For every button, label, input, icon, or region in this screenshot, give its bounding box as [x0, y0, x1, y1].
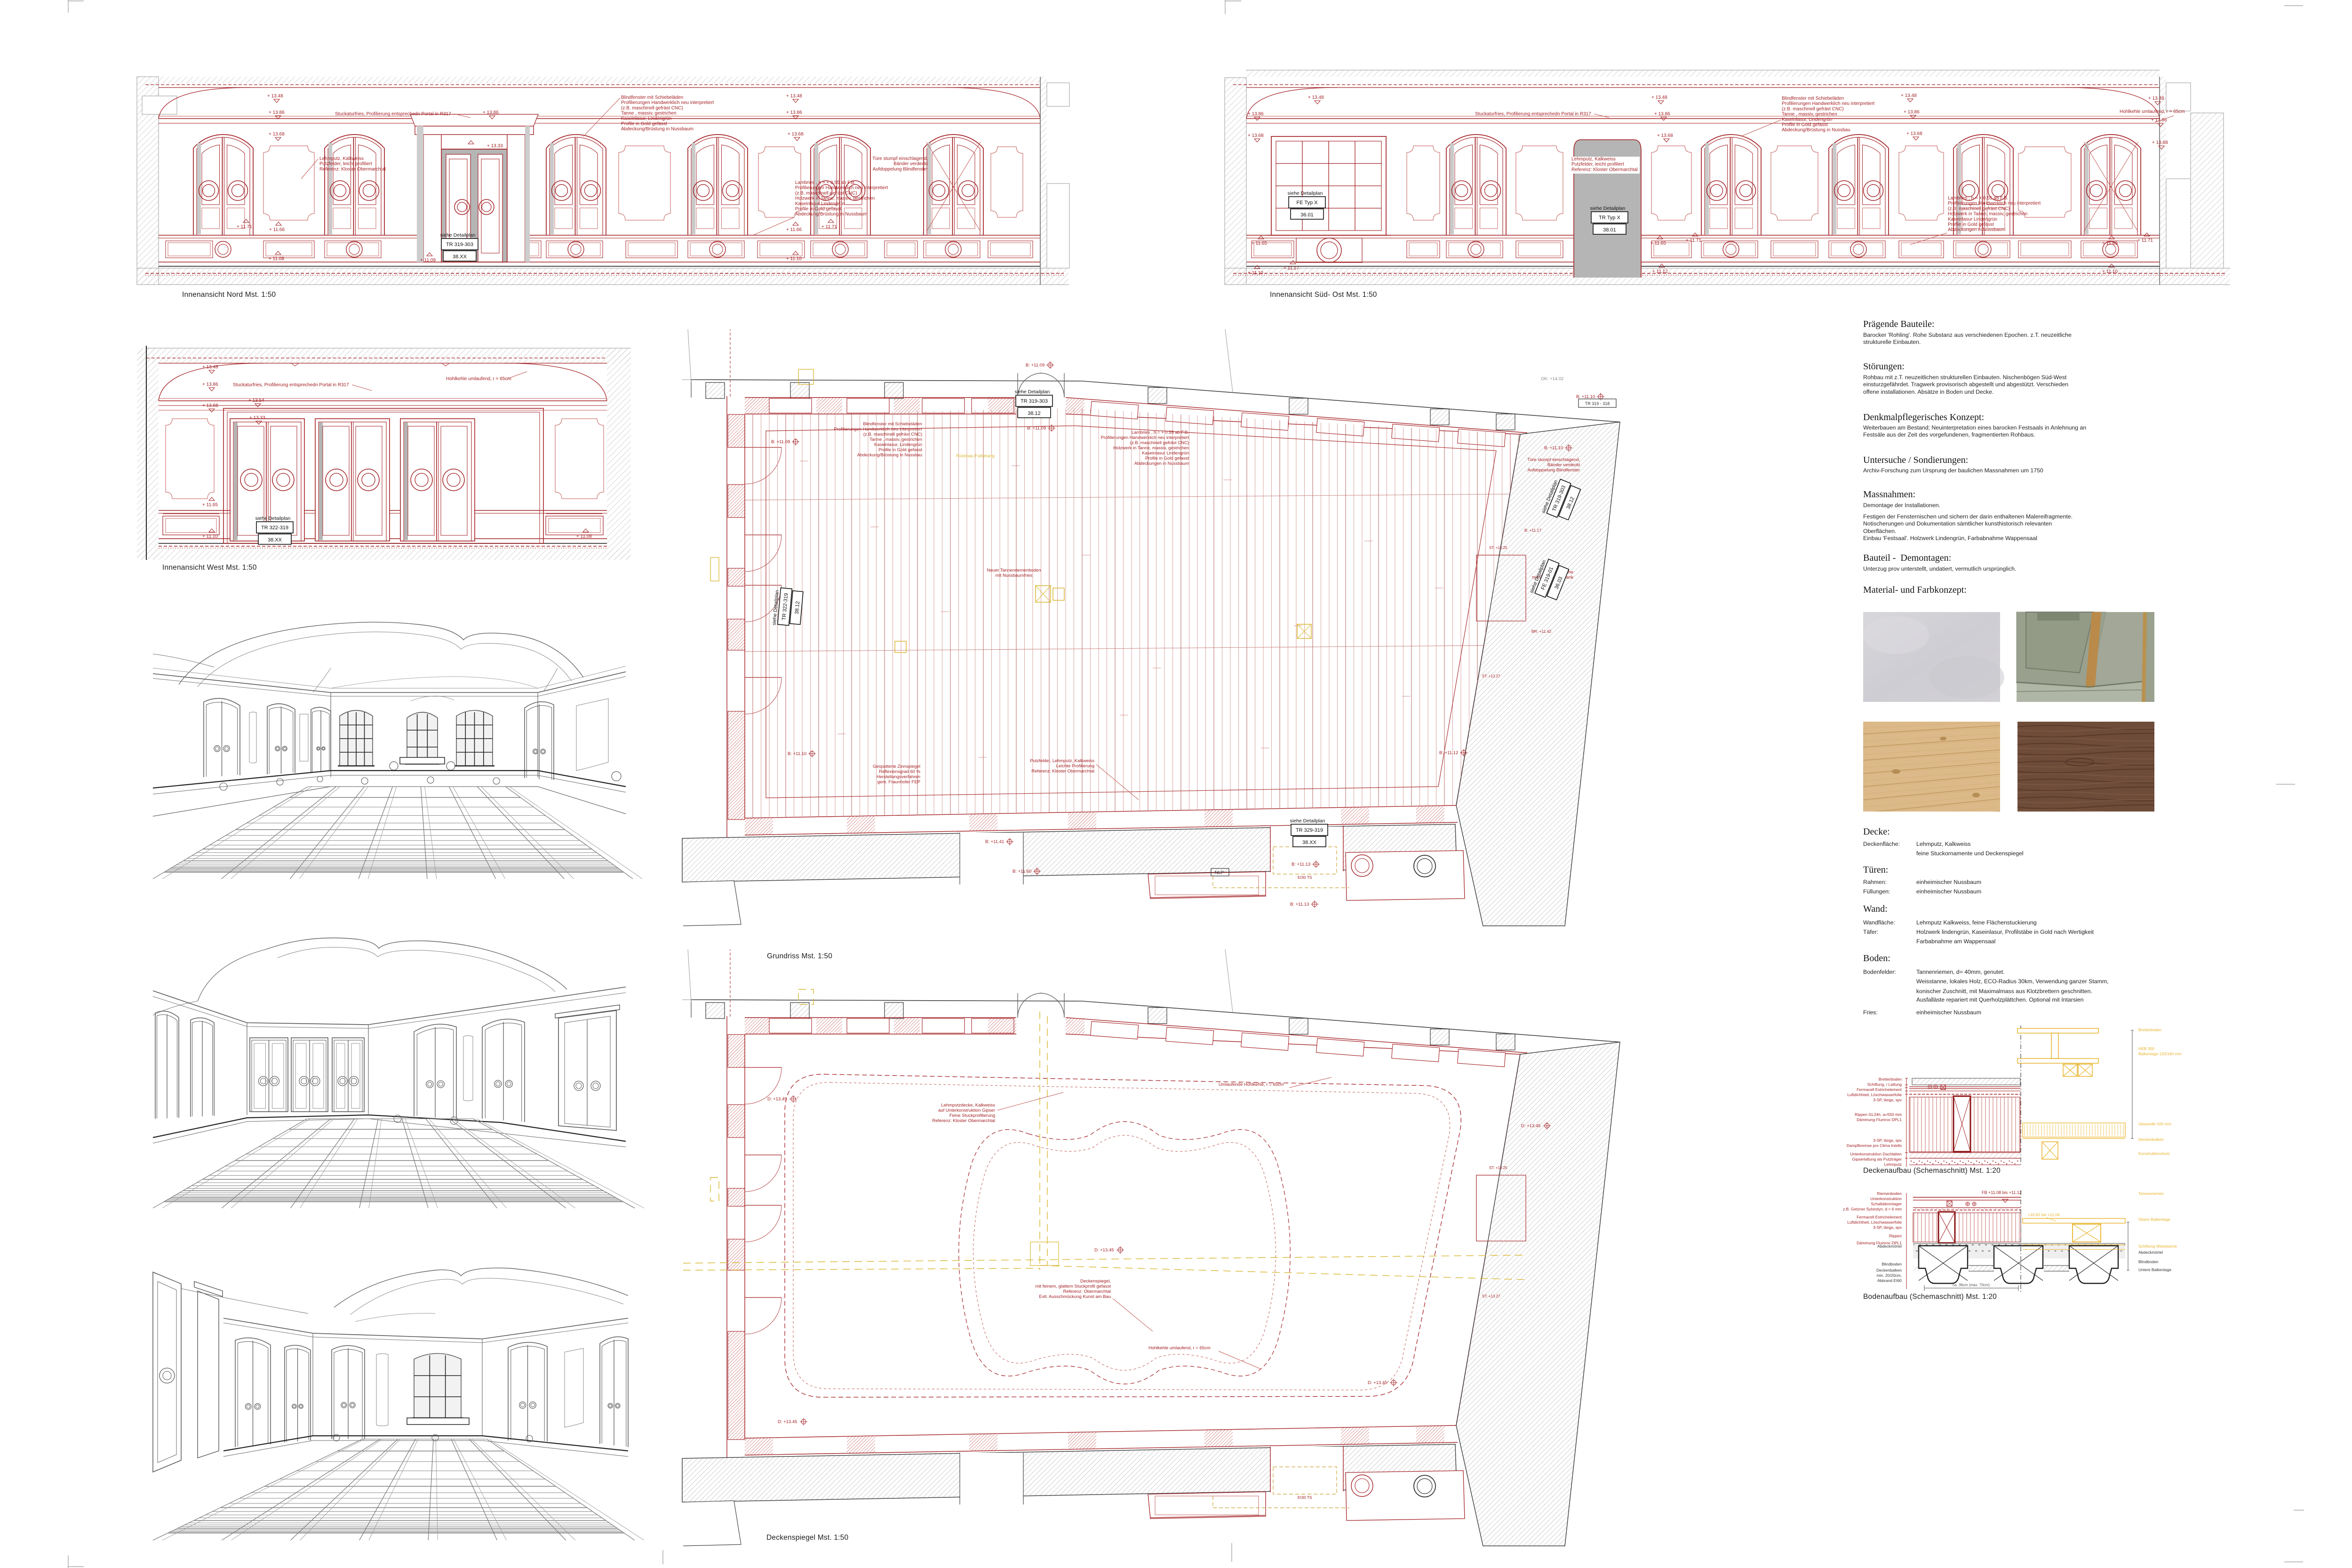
svg-text:Kaseinlasur Lindengrün: Kaseinlasur Lindengrün [1948, 217, 1997, 222]
svg-text:D: +13.45: D: +13.45 [767, 1097, 787, 1102]
svg-text:Leichte Profilierung: Leichte Profilierung [1056, 764, 1094, 769]
svg-text:+ 11.71: + 11.71 [2137, 238, 2153, 243]
svg-text:B: +11.10: B: +11.10 [1544, 446, 1563, 451]
svg-text:Deckenbalken: Deckenbalken [1876, 1268, 1902, 1273]
svg-text:siehe Detailplan: siehe Detailplan [440, 232, 476, 238]
svg-text:Abdeckmörtel: Abdeckmörtel [1877, 1244, 1902, 1249]
svg-text:D: +13.45: D: +13.45 [1521, 1123, 1540, 1129]
svg-text:Neuer Tannenriemenboden: Neuer Tannenriemenboden [987, 568, 1041, 573]
svg-text:Schiftung Weisstanne: Schiftung Weisstanne [2138, 1244, 2177, 1249]
svg-text:38.XX: 38.XX [1302, 840, 1317, 845]
svg-text:Herstellungsverfahren: Herstellungsverfahren [877, 774, 920, 780]
svg-text:Gipserlattung als Putzträger: Gipserlattung als Putzträger [1852, 1157, 1902, 1162]
svg-text:BR: +11.42: BR: +11.42 [1531, 629, 1551, 634]
svg-text:ST: +13.27: ST: +13.27 [1482, 1294, 1500, 1298]
svg-text:Holzwerk in Tanne, massiv, ges: Holzwerk in Tanne, massiv, gestrichen [1948, 212, 2027, 217]
svg-text:Stuckaturfries, Profilierung e: Stuckaturfries, Profilierung entspreched… [1475, 111, 1591, 117]
svg-text:B: +11.13: B: +11.13 [1292, 862, 1310, 867]
svg-text:HEB 300: HEB 300 [2138, 1046, 2154, 1051]
svg-text:Tanne , massiv, gestrichen: Tanne , massiv, gestrichen [869, 437, 922, 442]
svg-text:36.01: 36.01 [1300, 212, 1314, 218]
svg-text:B: +11.12: B: +11.12 [1439, 750, 1458, 756]
svg-text:+ 13.68: + 13.68 [202, 403, 218, 408]
svg-text:Abdeckung/Brüstung in Nussbau: Abdeckung/Brüstung in Nussbau [857, 453, 922, 458]
svg-text:Kaseinlasur Lindengrün: Kaseinlasur Lindengrün [1142, 451, 1189, 456]
svg-text:+ 13.48: + 13.48 [1308, 95, 1324, 100]
svg-text:+ 13.48: + 13.48 [2148, 96, 2164, 101]
svg-text:siehe Detailplan: siehe Detailplan [1590, 206, 1626, 211]
svg-text:Bänder verdeckt: Bänder verdeckt [1547, 462, 1580, 468]
svg-text:B: +11.13: B: +11.13 [1290, 902, 1309, 907]
svg-text:+ 13.86: + 13.86 [1904, 110, 1920, 115]
svg-text:+ 13.68: + 13.68 [2152, 140, 2168, 145]
svg-text:NLP: NLP [1215, 870, 1224, 876]
svg-text:+ 11.71: + 11.71 [237, 224, 252, 230]
svg-text:EI30 TS: EI30 TS [1298, 875, 1312, 880]
svg-text:(z.B. maschinell gefräst CNC): (z.B. maschinell gefräst CNC) [1948, 206, 2010, 211]
svg-text:+ 11.17: + 11.17 [1284, 266, 1299, 271]
svg-text:+ 11.66: + 11.66 [786, 227, 802, 232]
svg-text:B: +11.17: B: +11.17 [1524, 528, 1541, 533]
svg-text:+ 13.86: + 13.86 [269, 110, 285, 115]
svg-text:Bänder verdeckt: Bänder verdeckt [893, 161, 928, 167]
svg-text:Reflexionsgrad 60 %: Reflexionsgrad 60 % [879, 769, 920, 774]
svg-text:Abdeckungen in Nussbaum: Abdeckungen in Nussbaum [1134, 461, 1189, 466]
svg-text:Kaseinlasur Lindengrün: Kaseinlasur Lindengrün [795, 201, 845, 207]
svg-text:TR 319 - 318: TR 319 - 318 [1585, 401, 1610, 406]
svg-text:3-SP, längs, spv: 3-SP, längs, spv [1873, 1098, 1902, 1102]
svg-text:TR 329-319: TR 329-319 [1296, 828, 1323, 833]
svg-text:+ 11.65: + 11.65 [202, 502, 218, 508]
svg-text:(z.B. maschinell gefräst CNC): (z.B. maschinell gefräst CNC) [1130, 440, 1189, 446]
svg-text:Untere Balkenlage: Untere Balkenlage [2138, 1267, 2171, 1272]
svg-text:min. 20/20cm,: min. 20/20cm, [1877, 1273, 1902, 1278]
svg-text:Profilierungen Handwerklich ne: Profilierungen Handwerklich neu interpre… [795, 185, 888, 191]
svg-text:B: +11.41: B: +11.41 [985, 839, 1004, 844]
svg-text:Hohlkehle umlaufend, r = 65cm: Hohlkehle umlaufend, r = 65cm [1148, 1345, 1211, 1351]
svg-text:TR 319-303: TR 319-303 [446, 242, 473, 247]
svg-text:Türe stumpf einschlagend,: Türe stumpf einschlagend, [872, 156, 928, 161]
svg-text:+ 13.86: + 13.86 [786, 110, 802, 115]
svg-text:(z.B. maschinell gefräst CNC): (z.B. maschinell gefräst CNC) [795, 191, 857, 196]
svg-text:38.12: 38.12 [794, 601, 801, 614]
svg-text:Lehmputz, Kalkweiss: Lehmputz, Kalkweiss [1571, 157, 1616, 162]
svg-text:Fermacell Estrichelement: Fermacell Estrichelement [1857, 1215, 1902, 1219]
svg-text:Tanne , massiv, gestrichen: Tanne , massiv, gestrichen [1782, 112, 1837, 117]
svg-text:+10.92 bis +11.04: +10.92 bis +11.04 [2028, 1212, 2060, 1217]
svg-text:+ 13.86: + 13.86 [1654, 111, 1670, 117]
svg-text:Abdeckmörtel: Abdeckmörtel [2138, 1250, 2163, 1255]
svg-text:+ 13.68: + 13.68 [1248, 133, 1264, 138]
svg-text:Lehmputzdecke, Kalkweiss: Lehmputzdecke, Kalkweiss [941, 1103, 995, 1108]
svg-text:(z.B. maschinell gefräst CNC): (z.B. maschinell gefräst CNC) [863, 432, 922, 437]
svg-text:Gesputterte Zinnspiegel: Gesputterte Zinnspiegel [873, 764, 920, 769]
svg-text:+ 11.08: + 11.08 [576, 534, 592, 539]
svg-text:Putzfelder, leicht profiliert: Putzfelder, leicht profiliert [319, 161, 372, 167]
svg-text:Umlaufende Hohlkehle, r = 65cm: Umlaufende Hohlkehle, r = 65cm [1219, 1082, 1284, 1087]
svg-text:Blindfenster mit Schiebeläden: Blindfenster mit Schiebeläden [1782, 96, 1844, 101]
svg-text:OK: +14.02: OK: +14.02 [1541, 376, 1563, 382]
svg-text:Konstruktionsholz: Konstruktionsholz [2138, 1151, 2170, 1156]
svg-text:38.01: 38.01 [1603, 227, 1616, 233]
svg-text:Rückbau Fallstrang: Rückbau Fallstrang [956, 454, 995, 459]
svg-text:Referenz: Obermarchtal: Referenz: Obermarchtal [1063, 1289, 1111, 1294]
svg-text:+ 11.71: + 11.71 [821, 224, 837, 230]
svg-text:+ 11.10: + 11.10 [202, 534, 218, 539]
svg-text:Abdeckungen in Nussbaum: Abdeckungen in Nussbaum [1948, 227, 2005, 232]
svg-text:Profile in Gold gefasst: Profile in Gold gefasst [1782, 122, 1828, 127]
svg-text:38.XX: 38.XX [268, 537, 282, 543]
svg-text:Unterkonstruktion: Unterkonstruktion [1870, 1196, 1902, 1201]
svg-text:Blindfenster mit Schiebeläden: Blindfenster mit Schiebeläden [863, 422, 922, 427]
svg-text:TR Typ X: TR Typ X [1599, 215, 1620, 221]
svg-text:ST: +13.25: ST: +13.25 [1489, 546, 1507, 550]
svg-text:+ 13.86: + 13.86 [202, 382, 218, 387]
svg-text:+ 11.65: + 11.65 [2102, 241, 2118, 246]
svg-text:Balkenlage 120/160 mm: Balkenlage 120/160 mm [2138, 1051, 2182, 1056]
svg-text:Feine Stuckprofilierung: Feine Stuckprofilierung [949, 1113, 995, 1118]
svg-text:Profile in Gold gefasst: Profile in Gold gefasst [621, 121, 667, 127]
svg-text:+ 13.86: + 13.86 [2151, 118, 2167, 123]
svg-text:Kaseinlasur, Lindengrün: Kaseinlasur, Lindengrün [874, 442, 922, 447]
svg-text:+ 11.10: + 11.10 [2102, 269, 2118, 274]
svg-text:TR 319-303: TR 319-303 [1021, 398, 1048, 404]
svg-text:Luftdichhteit, Löschwasserfoli: Luftdichhteit, Löschwasserfolie [1847, 1092, 1902, 1097]
svg-text:+ 13.68: + 13.68 [269, 132, 285, 137]
svg-text:38.12: 38.12 [1028, 411, 1041, 416]
svg-text:siehe Detailplan: siehe Detailplan [1290, 818, 1325, 824]
svg-text:+ 13.86: + 13.86 [1248, 111, 1264, 117]
svg-text:+ 13.68: + 13.68 [788, 132, 804, 137]
svg-text:Fermacell Estrichelement: Fermacell Estrichelement [1857, 1087, 1902, 1092]
svg-text:+ 13.33: + 13.33 [249, 415, 265, 421]
svg-text:Schiftung, / Lattung: Schiftung, / Lattung [1867, 1082, 1902, 1087]
svg-text:Tannenriemen: Tannenriemen [2138, 1191, 2164, 1196]
svg-text:Profilierungen Handwerklich ne: Profilierungen Handwerklich neu interpre… [834, 427, 923, 432]
svg-text:Kaseinlasur, Lindengrün: Kaseinlasur, Lindengrün [1782, 117, 1832, 122]
svg-text:+ 13.48: + 13.48 [786, 94, 802, 99]
svg-text:Luftdichtheit, Löschwasserfoli: Luftdichtheit, Löschwasserfolie [1847, 1220, 1902, 1225]
svg-text:Profilierungen Handwerklich ne: Profilierungen Handwerklich neu interpre… [1782, 101, 1875, 106]
svg-text:Referenz: Kloster Obermarchtal: Referenz: Kloster Obermarchtal [1571, 167, 1638, 172]
svg-text:+ 13.54: + 13.54 [248, 398, 264, 403]
svg-text:Riemenboden: Riemenboden [1877, 1191, 1902, 1196]
svg-text:siehe Detailplan: siehe Detailplan [255, 516, 291, 521]
svg-text:Putzfelder, leicht profiliert: Putzfelder, leicht profiliert [1571, 162, 1624, 167]
svg-text:(z.B. maschinell gefräst CNC): (z.B. maschinell gefräst CNC) [1782, 106, 1844, 111]
svg-text:Bretterboden: Bretterboden [1879, 1077, 1902, 1082]
svg-text:Profilierungen Handwerklich ne: Profilierungen Handwerklich neu interpre… [621, 100, 714, 105]
svg-text:Aufdoppelung Blindfenster: Aufdoppelung Blindfenster [873, 167, 928, 172]
svg-text:(z.B. maschinell gefräst CNC): (z.B. maschinell gefräst CNC) [621, 105, 683, 111]
svg-text:Referenz: Kloster Obermarchtal: Referenz: Kloster Obermarchtal [932, 1118, 995, 1123]
svg-text:+ 11.71: + 11.71 [1686, 238, 1701, 243]
svg-text:Aufdoppelung Blindfenster: Aufdoppelung Blindfenster [1528, 468, 1580, 473]
svg-text:Bretterboden: Bretterboden [2138, 1027, 2161, 1032]
svg-text:+ 11.10: + 11.10 [786, 256, 802, 262]
svg-text:gem. Fraunhofer FEP: gem. Fraunhofer FEP [877, 780, 920, 785]
svg-text:+ 11.66: + 11.66 [269, 227, 285, 232]
svg-text:Profile in Gold gefasst: Profile in Gold gefasst [878, 447, 922, 453]
svg-text:B: +11.08: B: +11.08 [771, 439, 790, 445]
svg-text:Lehmputz, Kalkweiss: Lehmputz, Kalkweiss [319, 156, 364, 161]
svg-text:TR 322-319: TR 322-319 [261, 525, 288, 531]
svg-text:Deckenspiegel,: Deckenspiegel, [1080, 1279, 1111, 1284]
svg-text:+ 13.68: + 13.68 [1657, 133, 1673, 138]
svg-text:Rippen: Rippen [1889, 1234, 1902, 1238]
svg-text:Profile in Gold gefasst: Profile in Gold gefasst [1948, 222, 1994, 227]
svg-text:Blindboden: Blindboden [2138, 1259, 2159, 1264]
svg-text:Lambries , h = + 0.55 ab F.B.: Lambries , h = + 0.55 ab F.B. [1132, 430, 1189, 435]
svg-text:Profilierungen Handwerklich ne: Profilierungen Handwerklich neu interpre… [1101, 435, 1189, 440]
svg-text:+ 13.68: + 13.68 [1906, 131, 1922, 136]
svg-text:Hohlkehle umlaufend, r = 65cm: Hohlkehle umlaufend, r = 65cm [2120, 109, 2185, 114]
svg-text:+ 13.48: + 13.48 [202, 365, 218, 370]
svg-text:ST: +13.27: ST: +13.27 [1482, 674, 1500, 678]
svg-text:Schalldämmlager: Schalldämmlager [1871, 1202, 1902, 1206]
svg-text:Profile in Gold gefasst: Profile in Gold gefasst [1145, 456, 1189, 461]
svg-text:Referenz: Kloster Obermarchtal: Referenz: Kloster Obermarchtal [319, 167, 386, 172]
svg-text:Putzfelder, Lehmputz, Kalkweis: Putzfelder, Lehmputz, Kalkweiss [1030, 758, 1094, 764]
svg-text:B: +11.10: B: +11.10 [788, 751, 806, 756]
svg-text:mit feinem, glattem Stuckprofi: mit feinem, glattem Stuckprofil gefasst [1035, 1284, 1111, 1289]
svg-text:+ 11.65: + 11.65 [1252, 241, 1267, 246]
svg-text:Referenz: Kloster Obermarchtal: Referenz: Kloster Obermarchtal [1031, 769, 1094, 774]
svg-text:Holzwerk in Tanne, massiv, ges: Holzwerk in Tanne, massiv, gestrichen [795, 196, 875, 201]
svg-text:auf Unterkonstruktion Gipser: auf Unterkonstruktion Gipser [938, 1108, 995, 1113]
svg-text:Profilierungen Handwerklich ne: Profilierungen Handwerklich neu interpre… [1948, 201, 2041, 206]
svg-text:Stuckaturfries, Profilierung e: Stuckaturfries, Profilierung entspreched… [335, 111, 451, 117]
svg-text:+ 13.33: + 13.33 [487, 143, 503, 149]
svg-text:Glaswolle 100 mm: Glaswolle 100 mm [2138, 1122, 2171, 1126]
svg-text:Lehmputz: Lehmputz [1884, 1162, 1902, 1167]
svg-text:D: +13.45: D: +13.45 [1368, 1380, 1387, 1385]
svg-text:B: +11.09: B: +11.09 [1026, 363, 1044, 368]
svg-text:Holzwerk in Tanne, massiv, ges: Holzwerk in Tanne, massiv, gestrichen [1113, 446, 1189, 451]
svg-text:Lambries , h = + 0.55 ab F.B.: Lambries , h = + 0.55 ab F.B. [795, 180, 855, 185]
svg-text:Dämmung Flumroc DPL1: Dämmung Flumroc DPL1 [1857, 1117, 1902, 1122]
svg-text:+ 11.12: + 11.12 [1652, 269, 1668, 274]
svg-text:siehe Detailplan: siehe Detailplan [1015, 389, 1050, 395]
svg-text:+ 13.48: + 13.48 [267, 94, 283, 99]
svg-text:EI30 TS: EI30 TS [1298, 1495, 1312, 1500]
svg-text:Obere Balkenlage: Obere Balkenlage [2138, 1217, 2170, 1222]
svg-text:38.XX: 38.XX [453, 254, 467, 260]
svg-text:+ 13.48: + 13.48 [1901, 93, 1917, 98]
svg-text:B: +11.09: B: +11.09 [1027, 426, 1046, 431]
svg-text:siehe Detailplan: siehe Detailplan [1288, 191, 1323, 196]
svg-text:ca. 36cm (max. 70cm): ca. 36cm (max. 70cm) [1953, 1283, 1990, 1287]
svg-text:FE Typ X: FE Typ X [1296, 200, 1318, 206]
svg-text:+ 13.86: + 13.86 [483, 110, 499, 115]
svg-text:Dampfbremse pro Clima Intello: Dampfbremse pro Clima Intello [1847, 1143, 1902, 1148]
svg-text:ST: +13.25: ST: +13.25 [1489, 1166, 1507, 1170]
svg-text:Unterkonstruktion Dachlatten: Unterkonstruktion Dachlatten [1850, 1152, 1902, 1156]
svg-text:Hohlkehle umlaufend, r = 65cm: Hohlkehle umlaufend, r = 65cm [446, 376, 511, 382]
svg-text:Abdeckung/Brüstung in Nussbau: Abdeckung/Brüstung in Nussbau [1782, 127, 1850, 133]
svg-text:+ 11.08: + 11.08 [269, 256, 284, 262]
svg-text:+ 13.48: + 13.48 [1651, 95, 1667, 100]
svg-text:B: +11.60: B: +11.60 [1013, 869, 1031, 874]
svg-text:Rippen GL24h, a=550 mm: Rippen GL24h, a=550 mm [1855, 1112, 1902, 1117]
svg-text:Deckenbalken: Deckenbalken [2138, 1137, 2164, 1142]
svg-text:3-SP, längs, spv: 3-SP, längs, spv [1873, 1225, 1902, 1230]
svg-text:Stuckaturfries, Profilierung e: Stuckaturfries, Profilierung entspreched… [233, 382, 349, 388]
svg-text:+ 11.65: + 11.65 [1650, 241, 1666, 246]
svg-text:Abdeckung/Brüstung in Nussbaum: Abdeckung/Brüstung in Nussbaum [621, 127, 694, 132]
svg-text:+ 11.10: + 11.10 [1248, 271, 1263, 276]
svg-text:Abdeckung/Brüstung in Nussbaum: Abdeckung/Brüstung in Nussbaum [795, 212, 868, 217]
svg-text:Tanne , massiv, gestrichen: Tanne , massiv, gestrichen [621, 111, 677, 116]
svg-text:Kaseinlasur, Lindengrün: Kaseinlasur, Lindengrün [621, 116, 671, 121]
svg-text:3-SP, längs, spv: 3-SP, längs, spv [1873, 1138, 1902, 1143]
svg-text:Türe stumpf einschlagend,: Türe stumpf einschlagend, [1527, 457, 1580, 462]
svg-text:Blindfenster mit Schiebeläden: Blindfenster mit Schiebeläden [621, 95, 683, 100]
svg-text:Abbrand EI60: Abbrand EI60 [1877, 1278, 1902, 1283]
svg-text:Evtl. Ausschmückung Kunst am B: Evtl. Ausschmückung Kunst am Bau [1039, 1294, 1111, 1299]
svg-text:B: +11.10: B: +11.10 [1576, 394, 1595, 399]
svg-text:D: +13.45: D: +13.45 [1094, 1248, 1114, 1253]
svg-text:FB +11.08 bis +11.12: FB +11.08 bis +11.12 [1982, 1190, 2022, 1195]
svg-text:D: +13.45: D: +13.45 [778, 1419, 797, 1425]
svg-text:+ 11.09: + 11.09 [420, 258, 436, 263]
svg-text:z.B. Getzner Sylondyn, d = 6 m: z.B. Getzner Sylondyn, d = 6 mm [1843, 1207, 1902, 1211]
svg-text:Profile in Gold gefasst: Profile in Gold gefasst [795, 207, 841, 212]
svg-text:Lambries , h = + 0.55 ab F.B.: Lambries , h = + 0.55 ab F.B. [1948, 196, 2008, 201]
svg-text:Blindboden: Blindboden [1882, 1262, 1902, 1266]
svg-text:mit Nussbaumfries: mit Nussbaumfries [996, 573, 1033, 578]
